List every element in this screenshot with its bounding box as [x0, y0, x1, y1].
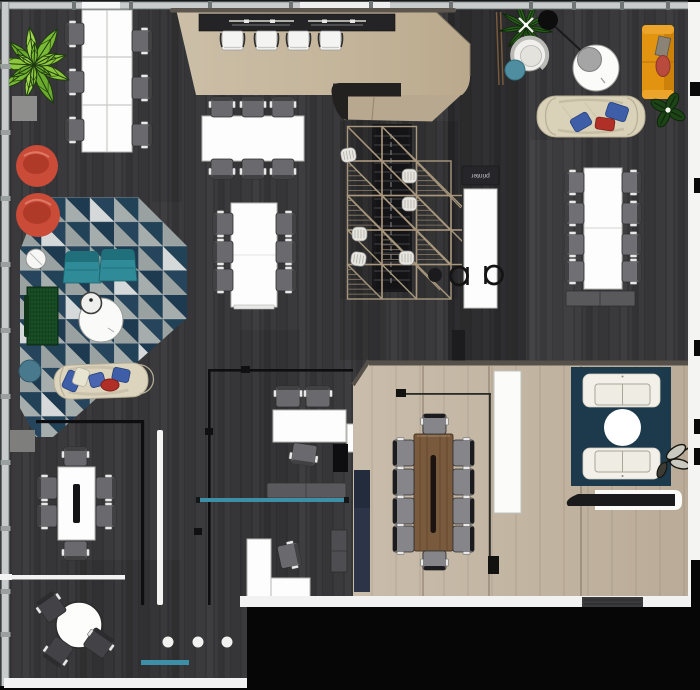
svg-text:printer: printer: [470, 172, 489, 179]
